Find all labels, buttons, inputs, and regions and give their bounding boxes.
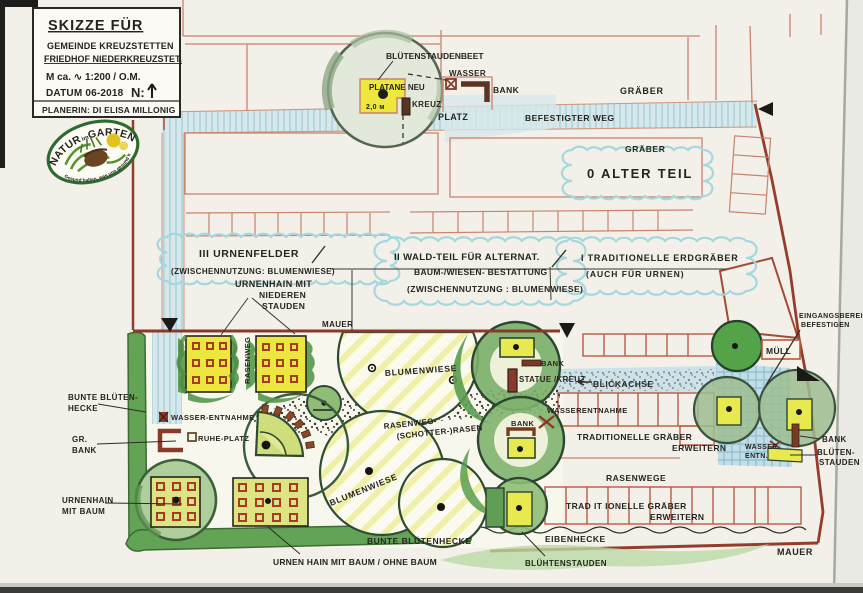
svg-text:BEFESTIGEN: BEFESTIGEN xyxy=(801,322,850,329)
svg-text:BANK: BANK xyxy=(511,419,534,428)
svg-text:BUNTE BLÜTENHECKE: BUNTE BLÜTENHECKE xyxy=(367,536,471,546)
svg-text:BUNTE BLÜTEN-: BUNTE BLÜTEN- xyxy=(68,393,138,402)
svg-text:RASENWEGE: RASENWEGE xyxy=(606,473,666,483)
svg-text:RASENWEG: RASENWEG xyxy=(243,337,252,384)
svg-text:(AUCH FÜR URNEN): (AUCH FÜR URNEN) xyxy=(586,269,685,279)
svg-text:URNENHAIN: URNENHAIN xyxy=(62,496,114,505)
svg-text:BAUM-/WIESEN- BESTATTUNG: BAUM-/WIESEN- BESTATTUNG xyxy=(414,267,548,277)
svg-text:ERWEITERN: ERWEITERN xyxy=(672,443,726,453)
svg-text:GRÄBER: GRÄBER xyxy=(625,144,665,154)
svg-text:BLÜTEN-: BLÜTEN- xyxy=(817,448,855,457)
svg-text:STAUDEN: STAUDEN xyxy=(262,301,305,311)
svg-text:NIEDEREN: NIEDEREN xyxy=(259,290,306,300)
svg-text:PLANERIN: DI ELISA MILLONIG: PLANERIN: DI ELISA MILLONIG xyxy=(42,105,176,115)
svg-text:2,0 м: 2,0 м xyxy=(366,104,385,111)
svg-text:I TRADITIONELLE ERDGRÄBER: I TRADITIONELLE ERDGRÄBER xyxy=(581,253,739,263)
svg-text:BLÜHTENSTAUDEN: BLÜHTENSTAUDEN xyxy=(525,559,607,568)
svg-text:III URNENFELDER: III URNENFELDER xyxy=(199,248,299,260)
svg-text:0 ALTER TEIL: 0 ALTER TEIL xyxy=(587,166,693,181)
svg-text:BANK: BANK xyxy=(72,446,97,455)
svg-text:EIBENHECKE: EIBENHECKE xyxy=(545,534,606,544)
svg-text:MAUER: MAUER xyxy=(777,547,813,557)
svg-text:II WALD-TEIL FÜR ALTERNAT.: II WALD-TEIL FÜR ALTERNAT. xyxy=(394,252,540,263)
svg-text:SKIZZE FÜR: SKIZZE FÜR xyxy=(48,17,143,34)
svg-text:EINGANGSBEREICH: EINGANGSBEREICH xyxy=(799,313,863,320)
svg-text:BEFESTIGTER WEG: BEFESTIGTER WEG xyxy=(525,113,615,123)
svg-text:HECKE: HECKE xyxy=(68,404,98,413)
svg-text:BANK: BANK xyxy=(493,85,520,95)
svg-text:WASSER: WASSER xyxy=(745,444,778,451)
svg-text:ENTN.: ENTN. xyxy=(745,453,768,460)
svg-text:N:: N: xyxy=(131,85,145,100)
svg-text:KREUZ: KREUZ xyxy=(412,100,442,109)
svg-text:WASSERENTNAHME: WASSERENTNAHME xyxy=(547,406,628,415)
svg-text:BANK: BANK xyxy=(541,359,564,368)
svg-text:TRAD IT IONELLE GRÄBER: TRAD IT IONELLE GRÄBER xyxy=(566,501,687,511)
svg-text:DATUM 06-2018: DATUM 06-2018 xyxy=(46,88,124,99)
svg-text:BLICKACHSE: BLICKACHSE xyxy=(593,379,654,389)
svg-text:PLATANE NEU: PLATANE NEU xyxy=(369,83,425,92)
svg-text:MAUER: MAUER xyxy=(322,320,353,329)
svg-text:URNEN HAIN MIT BAUM / OHNE BA: URNEN HAIN MIT BAUM / OHNE BAUM xyxy=(273,557,437,567)
svg-text:WASSER-ENTNAHME: WASSER-ENTNAHME xyxy=(171,413,255,422)
svg-text:WASSER: WASSER xyxy=(449,69,486,78)
svg-text:ERWEITERN: ERWEITERN xyxy=(650,512,704,522)
svg-text:GEMEINDE KREUZSTETTEN: GEMEINDE KREUZSTETTEN xyxy=(47,41,174,51)
svg-text:MIT BAUM: MIT BAUM xyxy=(62,507,105,516)
svg-text:TRADITIONELLE GRÄBER: TRADITIONELLE GRÄBER xyxy=(577,432,692,442)
svg-text:GR.: GR. xyxy=(72,435,87,444)
svg-text:BANK: BANK xyxy=(822,435,847,444)
svg-text:PLATZ: PLATZ xyxy=(438,112,468,122)
svg-text:STATUE /KREUZ: STATUE /KREUZ xyxy=(519,375,585,384)
svg-text:(ZWISCHENNUTZUNG: BLUMENWIESE): (ZWISCHENNUTZUNG: BLUMENWIESE) xyxy=(171,267,335,276)
svg-text:FRIEDHOF NIEDERKREUZSTET.: FRIEDHOF NIEDERKREUZSTET. xyxy=(44,54,182,64)
svg-text:RUHE-PLATZ: RUHE-PLATZ xyxy=(198,434,249,443)
svg-text:M ca. ∿ 1:200 / O.M.: M ca. ∿ 1:200 / O.M. xyxy=(46,72,141,83)
svg-text:GRÄBER: GRÄBER xyxy=(620,86,664,96)
svg-text:URNENHAIN MIT: URNENHAIN MIT xyxy=(235,279,312,289)
svg-text:STAUDEN: STAUDEN xyxy=(819,458,860,467)
svg-text:BLÜTENSTAUDENBEET: BLÜTENSTAUDENBEET xyxy=(386,51,484,61)
svg-text:(ZWISCHENNUTZUNG : BLUMENWIESE: (ZWISCHENNUTZUNG : BLUMENWIESE) xyxy=(407,284,583,294)
